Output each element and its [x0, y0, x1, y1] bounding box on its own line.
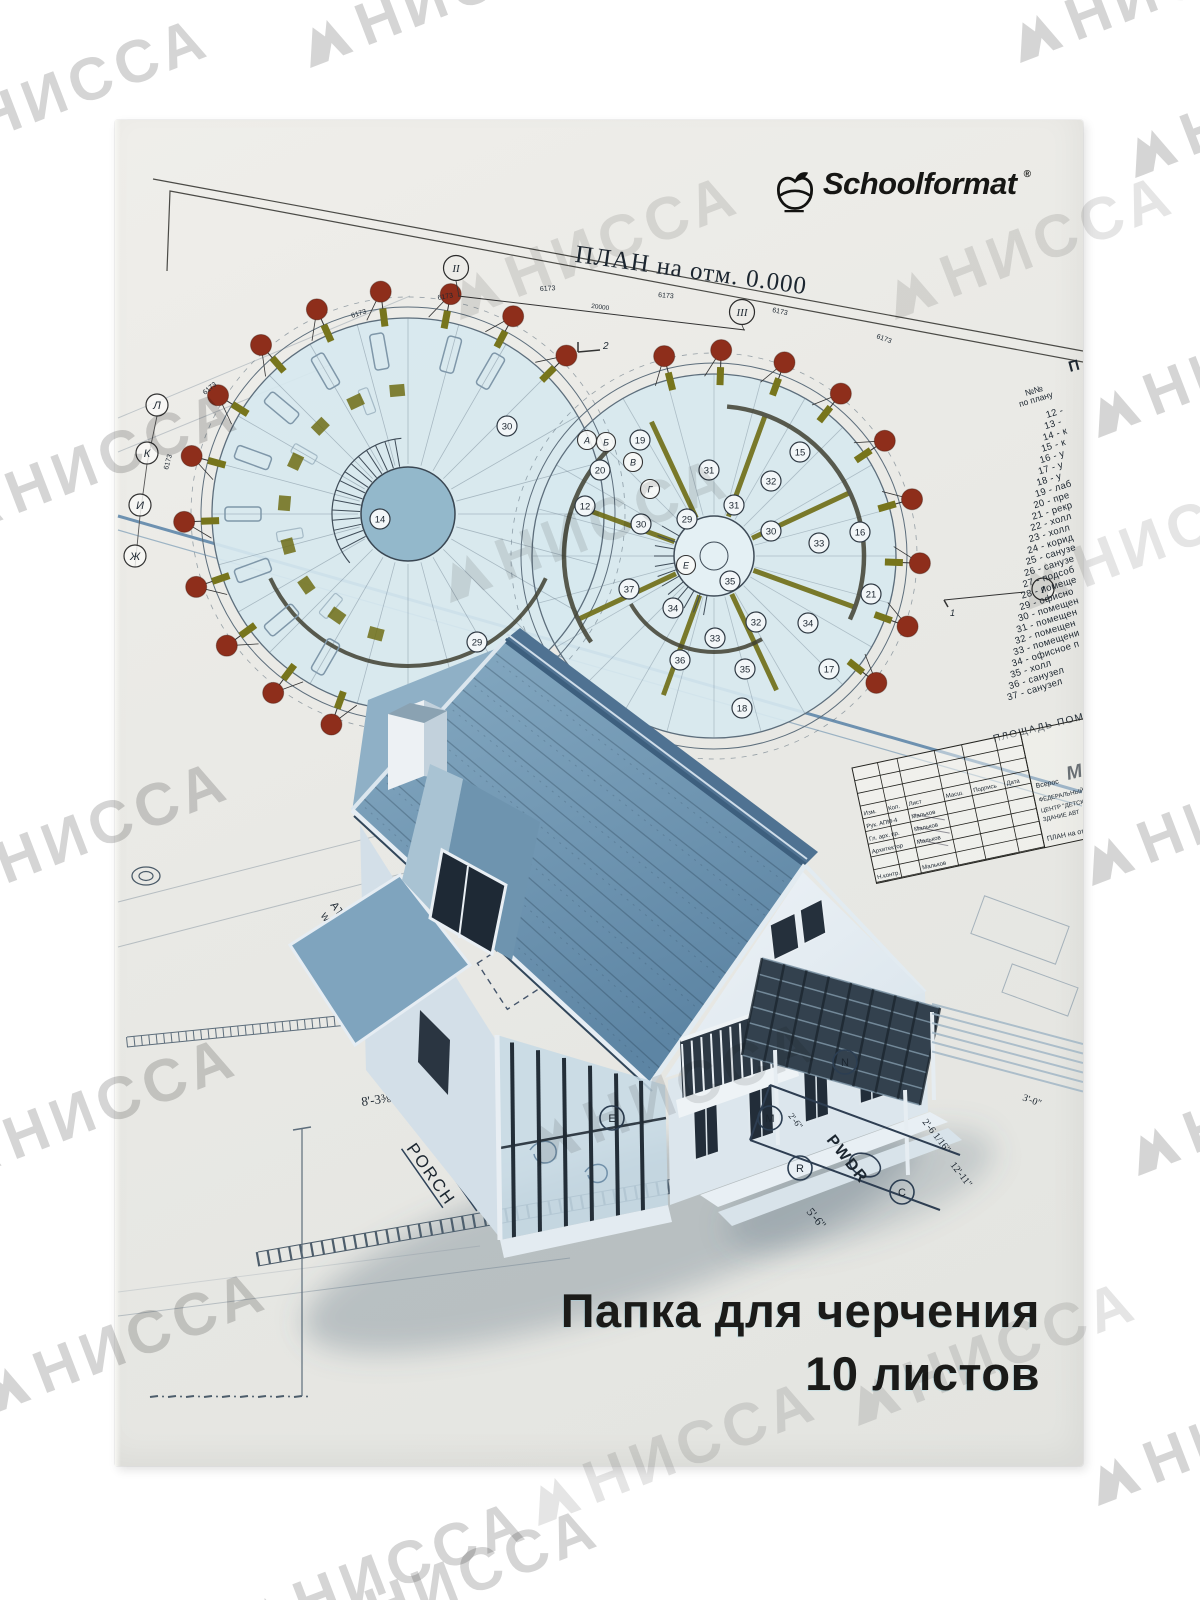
- room-badge-number: 15: [795, 447, 806, 458]
- hatch-tick: [208, 1029, 209, 1039]
- grid-letter: Б: [603, 437, 609, 447]
- nissa-watermark: НИССА: [1076, 1345, 1200, 1519]
- big-letter-p: П: [1067, 357, 1082, 376]
- hatch-tick: [297, 1020, 298, 1030]
- column-mark: [278, 495, 291, 511]
- nissa-watermark: НИССА: [298, 1492, 609, 1600]
- hatch-tick: [386, 1229, 388, 1243]
- hatch-tick: [275, 1022, 276, 1032]
- room-badge-number: 30: [502, 421, 513, 432]
- hatch-tick: [257, 1252, 259, 1266]
- hatch-tick: [186, 1031, 187, 1041]
- arc-dimension: 6173: [658, 292, 674, 300]
- hatch-tick: [354, 1235, 356, 1249]
- dash-dot-row: [150, 1396, 308, 1398]
- red-column-dot: [711, 340, 732, 361]
- olive-tick: [885, 558, 903, 566]
- dash-mark: [168, 1396, 176, 1397]
- brand-name: Schoolformat: [823, 168, 1017, 199]
- grid-letter: Е: [683, 560, 690, 570]
- room-badge-number: 17: [824, 664, 835, 675]
- nissa-watermark: НИССА: [1113, 17, 1200, 191]
- hatch-tick: [267, 1023, 268, 1033]
- plan-letter: E: [608, 1113, 615, 1125]
- room-badge-number: 35: [725, 576, 736, 587]
- red-column-dot: [874, 430, 895, 451]
- hatch-tick: [156, 1034, 157, 1044]
- frame-post: [512, 1042, 514, 1239]
- hatch-tick: [319, 1018, 320, 1028]
- room-badge-number: 33: [814, 538, 825, 549]
- room-badge-number: 32: [766, 476, 777, 487]
- hatch-tick: [193, 1030, 194, 1040]
- hatch-tick: [304, 1019, 305, 1029]
- product-title: Папка для черчения 10 листов: [561, 1280, 1040, 1406]
- hatch-tick: [278, 1248, 280, 1262]
- nissa-watermark-text: НИССА: [346, 0, 599, 59]
- hatch-tick: [215, 1028, 216, 1038]
- hatch-tick: [201, 1030, 202, 1040]
- axis-top-right: III: [736, 307, 749, 319]
- hatch-tick: [268, 1250, 270, 1264]
- misc-right-rects: [971, 896, 1078, 1016]
- red-column-dot: [251, 334, 272, 355]
- frame-post: [590, 1066, 592, 1224]
- room-badge-number: 32: [751, 617, 762, 628]
- room-badge-number: 30: [636, 519, 647, 530]
- brand-logo: Schoolformat ®: [774, 168, 1031, 214]
- red-column-dot: [654, 346, 675, 367]
- frame-post: [564, 1058, 566, 1229]
- red-column-dot: [174, 511, 195, 532]
- nissa-logo-glyph: [1080, 379, 1145, 441]
- red-column-dot: [186, 576, 207, 597]
- hatch-tick: [149, 1035, 150, 1045]
- room-legend: №№ по плану 12 - 13 - 14 - к15 - к16 - у…: [1006, 383, 1081, 703]
- red-column-dot: [866, 672, 887, 693]
- nissa-watermark-text: НИССА: [1171, 17, 1200, 169]
- nissa-watermark-text: НИССА: [284, 1485, 537, 1600]
- hatch-tick: [322, 1241, 324, 1255]
- nissa-logo-glyph: [520, 1467, 585, 1529]
- nissa-watermark-text: НИССА: [1128, 725, 1200, 877]
- nissa-watermark: НИССА: [226, 1485, 537, 1600]
- room-badge-number: 34: [803, 618, 814, 629]
- arc-dimension: 6173: [875, 333, 892, 345]
- room-badge-number: 29: [682, 514, 693, 525]
- dash-mark: [240, 1396, 248, 1397]
- hatch-tick: [230, 1027, 231, 1037]
- hatch-tick: [289, 1246, 291, 1260]
- room-badge-number: 12: [580, 501, 591, 512]
- nissa-logo-glyph: [1120, 1117, 1185, 1179]
- hatch-tick: [343, 1237, 345, 1251]
- red-column-dot: [263, 682, 284, 703]
- hatch-tick: [282, 1022, 283, 1032]
- plan-letter: C: [898, 1187, 906, 1199]
- hatch-tick: [334, 1016, 335, 1026]
- room-badge-number: 37: [624, 584, 635, 595]
- nissa-watermark: НИССА: [1116, 1015, 1200, 1189]
- red-column-dot: [902, 489, 923, 510]
- blueprint-artwork: 1412303037291531313230293316213435323433…: [115, 120, 1083, 1466]
- nissa-watermark-text: НИССА: [1134, 277, 1200, 429]
- nissa-watermark-text: НИССА: [1134, 1345, 1200, 1497]
- grid-letter: А: [583, 435, 590, 445]
- arc-dimension: 6173: [772, 307, 789, 317]
- plan-letter: M: [765, 1113, 774, 1125]
- nissa-logo-glyph: [230, 1587, 295, 1600]
- room-badge-number: 30: [766, 526, 777, 537]
- section-flag-1: 1: [950, 608, 955, 618]
- red-column-dot: [556, 345, 577, 366]
- room-badge-number: 21: [866, 589, 877, 600]
- dash-mark: [276, 1396, 284, 1397]
- arc-dimension: 6173: [163, 454, 174, 471]
- hatch-tick: [253, 1024, 254, 1034]
- hatch-tick: [238, 1026, 239, 1036]
- hatch-tick: [171, 1033, 172, 1043]
- room-badge-number: 20: [595, 465, 606, 476]
- arc-dimension: 6173: [350, 308, 367, 320]
- red-column-dot: [774, 352, 795, 373]
- nissa-watermark-text: НИССА: [1174, 1015, 1200, 1167]
- axis-letter: Ж: [129, 551, 141, 563]
- olive-tick: [201, 517, 219, 525]
- hatch-tick: [245, 1025, 246, 1035]
- hatch-tick: [290, 1021, 291, 1031]
- nissa-logo-glyph: [1080, 1447, 1145, 1509]
- frame-post: [641, 1081, 643, 1213]
- apple-icon: [774, 168, 816, 214]
- column-mark: [389, 384, 405, 397]
- red-column-dot: [897, 616, 918, 637]
- nissa-watermark-text: НИССА: [1064, 449, 1200, 601]
- room-badge-number: 34: [668, 603, 679, 614]
- hatch-tick: [134, 1036, 135, 1046]
- plan-letter: R: [796, 1163, 804, 1175]
- product-title-line1: Папка для черчения: [561, 1280, 1040, 1343]
- room-badge-number: 33: [710, 633, 721, 644]
- dash-mark: [204, 1396, 212, 1397]
- product-photo: 1412303037291531313230293316213435323433…: [0, 0, 1200, 1600]
- hatch-tick: [141, 1036, 142, 1046]
- plan-title: ПЛАН на отм. 0.000: [573, 241, 808, 300]
- plan-letter: N: [841, 1057, 849, 1069]
- axis-letter: К: [144, 448, 151, 460]
- red-column-dot: [830, 383, 851, 404]
- red-column-dot: [503, 306, 524, 327]
- room-badge-number: 35: [740, 664, 751, 675]
- nissa-watermark-text: НИССА: [356, 1492, 609, 1600]
- axis-markers: ЛКИЖ: [124, 394, 168, 567]
- room-badge-number: 31: [729, 500, 740, 511]
- total-dimension: 20000: [591, 303, 610, 312]
- room-badge-number: 16: [855, 527, 866, 538]
- dash-mark: [186, 1396, 194, 1397]
- room-badge-number: 31: [704, 465, 715, 476]
- nissa-logo-glyph: [302, 1594, 367, 1600]
- dash-mark: [150, 1396, 158, 1397]
- nissa-watermark-text: НИССА: [1056, 0, 1200, 54]
- red-column-dot: [306, 299, 327, 320]
- grid-letter: В: [630, 457, 636, 467]
- hatch-tick: [332, 1239, 334, 1253]
- room-badge-number: 14: [375, 514, 386, 525]
- red-column-dot: [909, 553, 930, 574]
- nissa-logo-glyph: [1002, 4, 1067, 66]
- axis-letter: И: [136, 500, 144, 512]
- nissa-logo-glyph: [1117, 119, 1182, 181]
- hatch-tick: [223, 1027, 224, 1037]
- dash-mark: [294, 1396, 302, 1397]
- section-flag-2: 2: [602, 341, 609, 352]
- nissa-watermark: НИССА: [1070, 725, 1200, 899]
- hatch-tick: [327, 1017, 328, 1027]
- room-badge-number: 19: [635, 435, 646, 446]
- axis-letter: Л: [152, 400, 161, 412]
- olive-tick: [716, 367, 724, 385]
- room-badge-number: 29: [472, 637, 483, 648]
- hatch-tick: [365, 1233, 367, 1247]
- room-badge-number: 18: [737, 703, 748, 714]
- hatch-tick: [178, 1032, 179, 1042]
- nissa-watermark: НИССА: [288, 0, 599, 82]
- nissa-logo-glyph: [0, 1123, 5, 1185]
- frame-post: [616, 1073, 618, 1217]
- registered-mark: ®: [1024, 169, 1031, 180]
- nissa-watermark: НИССА: [998, 0, 1200, 77]
- room-badge-number: 36: [675, 655, 686, 666]
- hatch-tick: [376, 1231, 378, 1245]
- red-column-dot: [321, 714, 342, 735]
- dash-mark: [258, 1396, 266, 1397]
- arc-dimension: 6173: [540, 285, 556, 293]
- nissa-watermark: НИССА: [1076, 277, 1200, 451]
- title-block: Изм.Кол.ЛистМасш.ПодписьДатаРук. АПМ-4Ма…: [852, 701, 1083, 883]
- red-column-dot: [181, 446, 202, 467]
- hatch-tick: [312, 1019, 313, 1029]
- dash-mark: [222, 1396, 230, 1397]
- hatch-tick: [311, 1243, 313, 1257]
- hatch-tick: [127, 1037, 128, 1047]
- hatch-tick: [260, 1024, 261, 1034]
- red-column-dot: [370, 281, 391, 302]
- hatch-tick: [164, 1033, 165, 1043]
- deck-boards: [932, 1004, 1083, 1092]
- dim-3-0: 3'-0": [1021, 1092, 1043, 1109]
- nissa-logo-glyph: [0, 1357, 35, 1419]
- red-column-dot: [216, 635, 237, 656]
- nissa-logo-glyph: [292, 9, 357, 71]
- folder-cover: 1412303037291531313230293316213435323433…: [115, 120, 1083, 1466]
- nissa-logo-glyph: [0, 477, 7, 539]
- product-title-line2: 10 листов: [561, 1343, 1040, 1406]
- axis-top-left: II: [451, 263, 461, 275]
- nissa-logo-glyph: [1074, 827, 1139, 889]
